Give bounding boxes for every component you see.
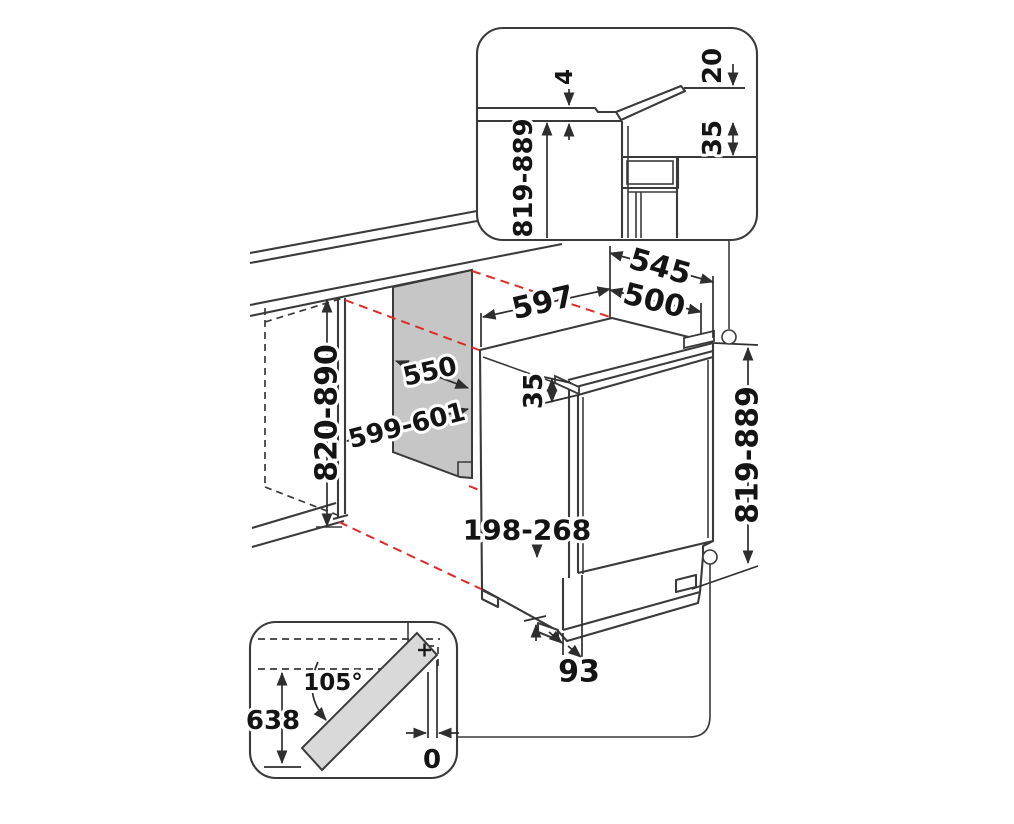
callout-circle-door (703, 550, 717, 564)
dim-label-820-890: 820-890 (310, 344, 345, 482)
inset-worktop-detail: 819-889 4 20 35 (477, 28, 757, 240)
inset-door-swing: 105° 638 0 (246, 622, 459, 778)
dim-label-93: 93 (558, 655, 600, 690)
inset-label-4: 4 (552, 69, 578, 85)
inset-label-638: 638 (246, 706, 300, 736)
diagram-page: 597 545 500 550 599-601 820-890 819-889 … (0, 0, 1014, 824)
installation-diagram: 597 545 500 550 599-601 820-890 819-889 … (0, 0, 1014, 824)
floor-line (252, 503, 336, 528)
inset-dim-20: 20 (698, 48, 733, 85)
inset-label-105: 105° (303, 670, 363, 696)
inset-label-20: 20 (698, 48, 728, 84)
dim-label-35-main: 35 (519, 373, 549, 409)
callout-circle-top (722, 330, 736, 344)
fridge-unit (480, 318, 714, 641)
dim-niche-height-820-890: 820-890 (310, 300, 345, 526)
inset-dim-35: 35 (698, 120, 733, 156)
inset-label-35: 35 (698, 120, 728, 156)
dim-label-819-889: 819-889 (731, 386, 766, 524)
dim-label-198-268: 198-268 (463, 514, 592, 547)
inset-label-819-889: 819-889 (509, 118, 539, 237)
inset-label-0: 0 (423, 745, 441, 775)
